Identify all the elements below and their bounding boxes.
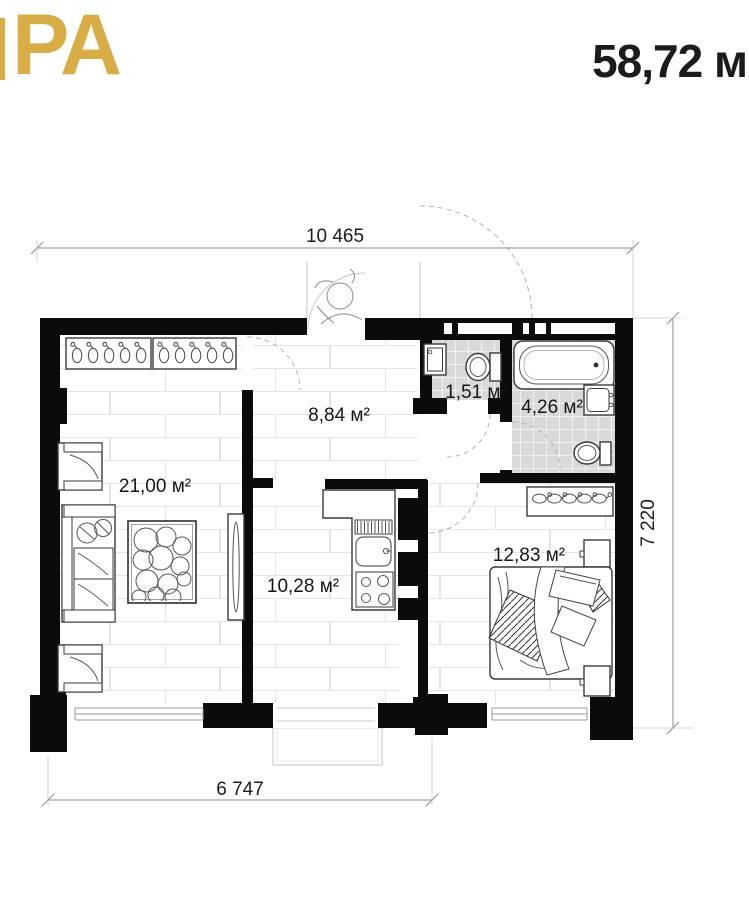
kitchen-appliance-hatch bbox=[355, 520, 392, 534]
armchair-top bbox=[58, 443, 102, 490]
wall-niche bbox=[551, 323, 615, 334]
dim-right: 7 220 bbox=[638, 499, 659, 547]
floor-plan-page: PA 58,72 м bbox=[0, 0, 749, 900]
bed bbox=[489, 567, 612, 679]
dim-top: 10 465 bbox=[306, 226, 364, 247]
tv-unit bbox=[228, 514, 244, 620]
wc-toilet bbox=[466, 353, 501, 381]
wall-niche bbox=[458, 323, 512, 334]
ventilation-shaft bbox=[398, 489, 418, 697]
hall-wardrobe-left bbox=[66, 338, 151, 369]
balcony-door-opening bbox=[273, 703, 378, 728]
room-label-bedroom: 12,83 м² bbox=[493, 545, 565, 566]
room-label-hallway: 8,84 м² bbox=[308, 405, 370, 426]
sofa bbox=[62, 505, 115, 622]
window-living bbox=[67, 703, 203, 728]
bathtub bbox=[514, 341, 614, 389]
floor-plan-drawing: 10 465 7 220 6 747 21,00 м² 8,84 м² 1,51… bbox=[0, 0, 749, 900]
kitchen-stove bbox=[356, 572, 393, 607]
entrance-door-arc bbox=[308, 273, 365, 330]
person-sketch bbox=[315, 269, 362, 324]
windows bbox=[67, 703, 590, 728]
nightstand-bottom bbox=[580, 666, 610, 696]
nightstand-top bbox=[580, 540, 610, 567]
balcony-outline bbox=[273, 728, 382, 765]
wall-niche bbox=[444, 323, 452, 334]
wall-niche bbox=[535, 323, 546, 334]
room-label-living: 21,00 м² bbox=[119, 476, 191, 497]
window-bedroom bbox=[487, 703, 590, 728]
bath-toilet bbox=[574, 442, 611, 465]
entrance-door-arc-outer bbox=[420, 206, 532, 318]
dim-bottom: 6 747 bbox=[216, 779, 264, 800]
bath-sink bbox=[584, 385, 614, 415]
room-label-kitchen: 10,28 м² bbox=[267, 576, 339, 597]
wc-sink bbox=[424, 344, 446, 375]
kitchen-sink bbox=[356, 537, 391, 566]
armchair-bottom bbox=[58, 645, 102, 692]
bedroom-wardrobe bbox=[527, 487, 613, 516]
corridor-floor bbox=[418, 414, 500, 473]
hall-wardrobe-right bbox=[153, 338, 236, 369]
entrance-area bbox=[307, 206, 532, 330]
room-label-bathroom: 4,26 м² bbox=[521, 397, 583, 418]
room-label-wc: 1,51 м² bbox=[445, 382, 507, 403]
bedroom-door-opening bbox=[428, 473, 480, 483]
wall-niche bbox=[523, 323, 529, 334]
rug bbox=[128, 521, 196, 605]
